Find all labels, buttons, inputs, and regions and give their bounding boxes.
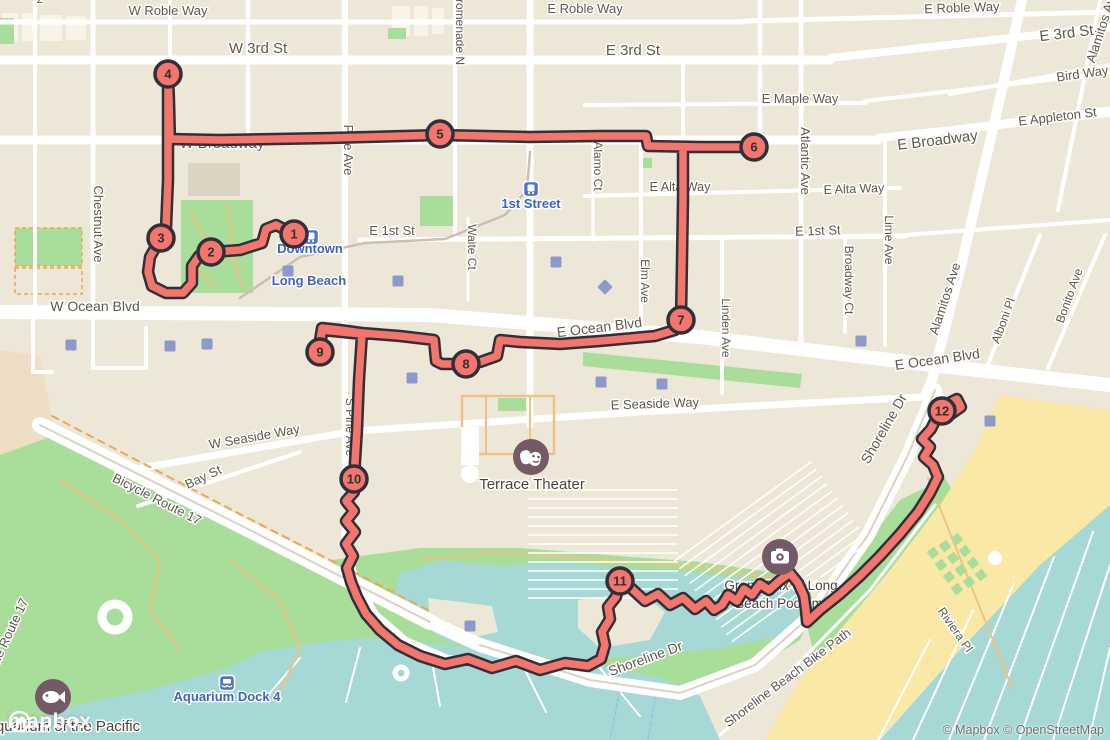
building-poi-square xyxy=(985,416,996,427)
building-poi-square xyxy=(465,621,476,632)
route-marker-number: 11 xyxy=(613,574,627,589)
road-label: Alamo Ct xyxy=(591,141,605,191)
road-label: Waite Ct xyxy=(465,224,479,270)
poi-label: Terrace Theater xyxy=(479,476,585,493)
route-marker-2[interactable]: 2 xyxy=(198,239,224,265)
route-marker-number: 7 xyxy=(677,313,684,328)
route-marker-number: 9 xyxy=(316,345,323,360)
road-label: E 3rd St xyxy=(606,42,661,59)
route-marker-number: 1 xyxy=(290,227,297,242)
building-poi-square xyxy=(66,340,77,351)
route-marker-number: 3 xyxy=(157,231,164,246)
building-poi-square xyxy=(393,276,404,287)
route-marker-5[interactable]: 5 xyxy=(427,121,453,147)
building-poi-square xyxy=(407,373,418,384)
road-label: 2 xyxy=(37,0,44,6)
building-poi-square xyxy=(202,339,213,350)
road-label: E Roble Way xyxy=(924,0,1000,16)
building-poi-square xyxy=(856,336,867,347)
transit-label: Long Beach xyxy=(272,273,346,288)
ferry-icon xyxy=(220,676,235,691)
bridge-green xyxy=(498,398,526,411)
park-area xyxy=(643,158,652,168)
route-marker-12[interactable]: 12 xyxy=(929,398,955,424)
route-marker-1[interactable]: 1 xyxy=(281,221,307,247)
park-area xyxy=(388,28,406,39)
building xyxy=(40,15,62,41)
road-label: Promenade N xyxy=(453,0,467,65)
route-marker-number: 4 xyxy=(164,67,172,82)
route-marker-11[interactable]: 11 xyxy=(607,568,633,594)
map-attribution[interactable]: © Mapbox © OpenStreetMap xyxy=(942,723,1104,737)
route-marker-3[interactable]: 3 xyxy=(148,225,174,251)
theater-poi-icon xyxy=(513,439,549,475)
route-marker-number: 10 xyxy=(347,472,361,487)
plaza xyxy=(461,427,479,465)
map-graphics[interactable]: W Roble WayE Roble WayE Roble WayW 3rd S… xyxy=(0,0,1110,740)
route-marker-number: 12 xyxy=(935,404,949,419)
mapbox-logo[interactable]: mapbox xyxy=(8,710,92,734)
park-area xyxy=(15,228,82,266)
building xyxy=(22,13,34,41)
route-marker-number: 8 xyxy=(462,357,469,372)
road-label: E Seaside Way xyxy=(610,394,699,412)
road-label: W 3rd St xyxy=(229,40,288,57)
road-label: Broadway Ct xyxy=(842,246,856,315)
route-marker-number: 6 xyxy=(750,140,757,155)
road-label: E Roble Way xyxy=(547,1,623,16)
route-marker-9[interactable]: 9 xyxy=(307,339,333,365)
road-label: Elm Ave xyxy=(638,259,652,303)
map-canvas[interactable]: W Roble WayE Roble WayE Roble WayW 3rd S… xyxy=(0,0,1110,740)
road-label: W Roble Way xyxy=(129,3,208,18)
building xyxy=(188,163,240,196)
route-marker-4[interactable]: 4 xyxy=(155,61,181,87)
beach-circle xyxy=(988,551,1002,565)
route-marker-7[interactable]: 7 xyxy=(668,307,694,333)
building-poi-square xyxy=(551,257,562,268)
route-marker-10[interactable]: 10 xyxy=(341,466,367,492)
transit-label: 1st Street xyxy=(501,196,561,211)
train-station-icon xyxy=(524,182,539,197)
route-marker-6[interactable]: 6 xyxy=(741,134,767,160)
route-marker-8[interactable]: 8 xyxy=(453,351,479,377)
road-label: E Alta Way xyxy=(823,181,885,197)
route-marker-number: 5 xyxy=(436,127,443,142)
park-area xyxy=(420,196,457,226)
road-label: E 1st St xyxy=(369,223,415,238)
road-label: Linden Ave xyxy=(719,298,733,357)
mapbox-compass-icon xyxy=(8,710,31,733)
road-label: Lime Ave xyxy=(882,215,896,264)
road-label: E 1st St xyxy=(795,222,841,239)
building-poi-square xyxy=(596,377,607,388)
camera-poi-icon xyxy=(762,539,798,575)
building-poi-square xyxy=(657,379,668,390)
road-label: E Maple Way xyxy=(762,91,839,106)
building-poi-square xyxy=(165,341,176,352)
road-label: Atlantic Ave xyxy=(798,127,813,195)
route-marker-number: 2 xyxy=(207,245,214,260)
road-label: W Ocean Blvd xyxy=(50,298,139,314)
plaza xyxy=(461,465,479,483)
road-label: Chestnut Ave xyxy=(91,185,106,262)
